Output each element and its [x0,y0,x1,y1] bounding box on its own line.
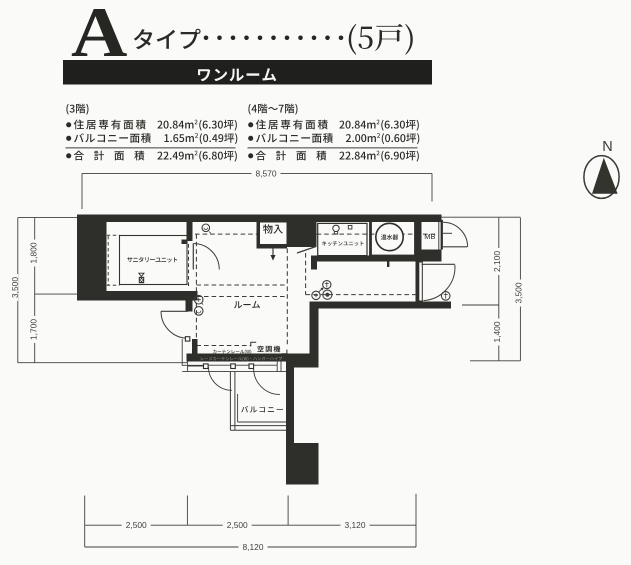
svg-text:3,120: 3,120 [345,520,366,530]
svg-text:2,500: 2,500 [227,520,248,530]
svg-text:N: N [602,139,612,155]
svg-text:1,400: 1,400 [492,321,502,342]
svg-text:3,500: 3,500 [514,282,524,303]
svg-text:1,700: 1,700 [28,319,38,340]
svg-text:2,100: 2,100 [492,251,502,272]
svg-text:8,120: 8,120 [243,542,264,552]
svg-text:3,500: 3,500 [10,277,20,298]
svg-text:MB: MB [424,232,435,241]
svg-text:8,570: 8,570 [256,168,277,178]
svg-text:2,500: 2,500 [126,520,147,530]
svg-text:1,800: 1,800 [28,242,38,263]
